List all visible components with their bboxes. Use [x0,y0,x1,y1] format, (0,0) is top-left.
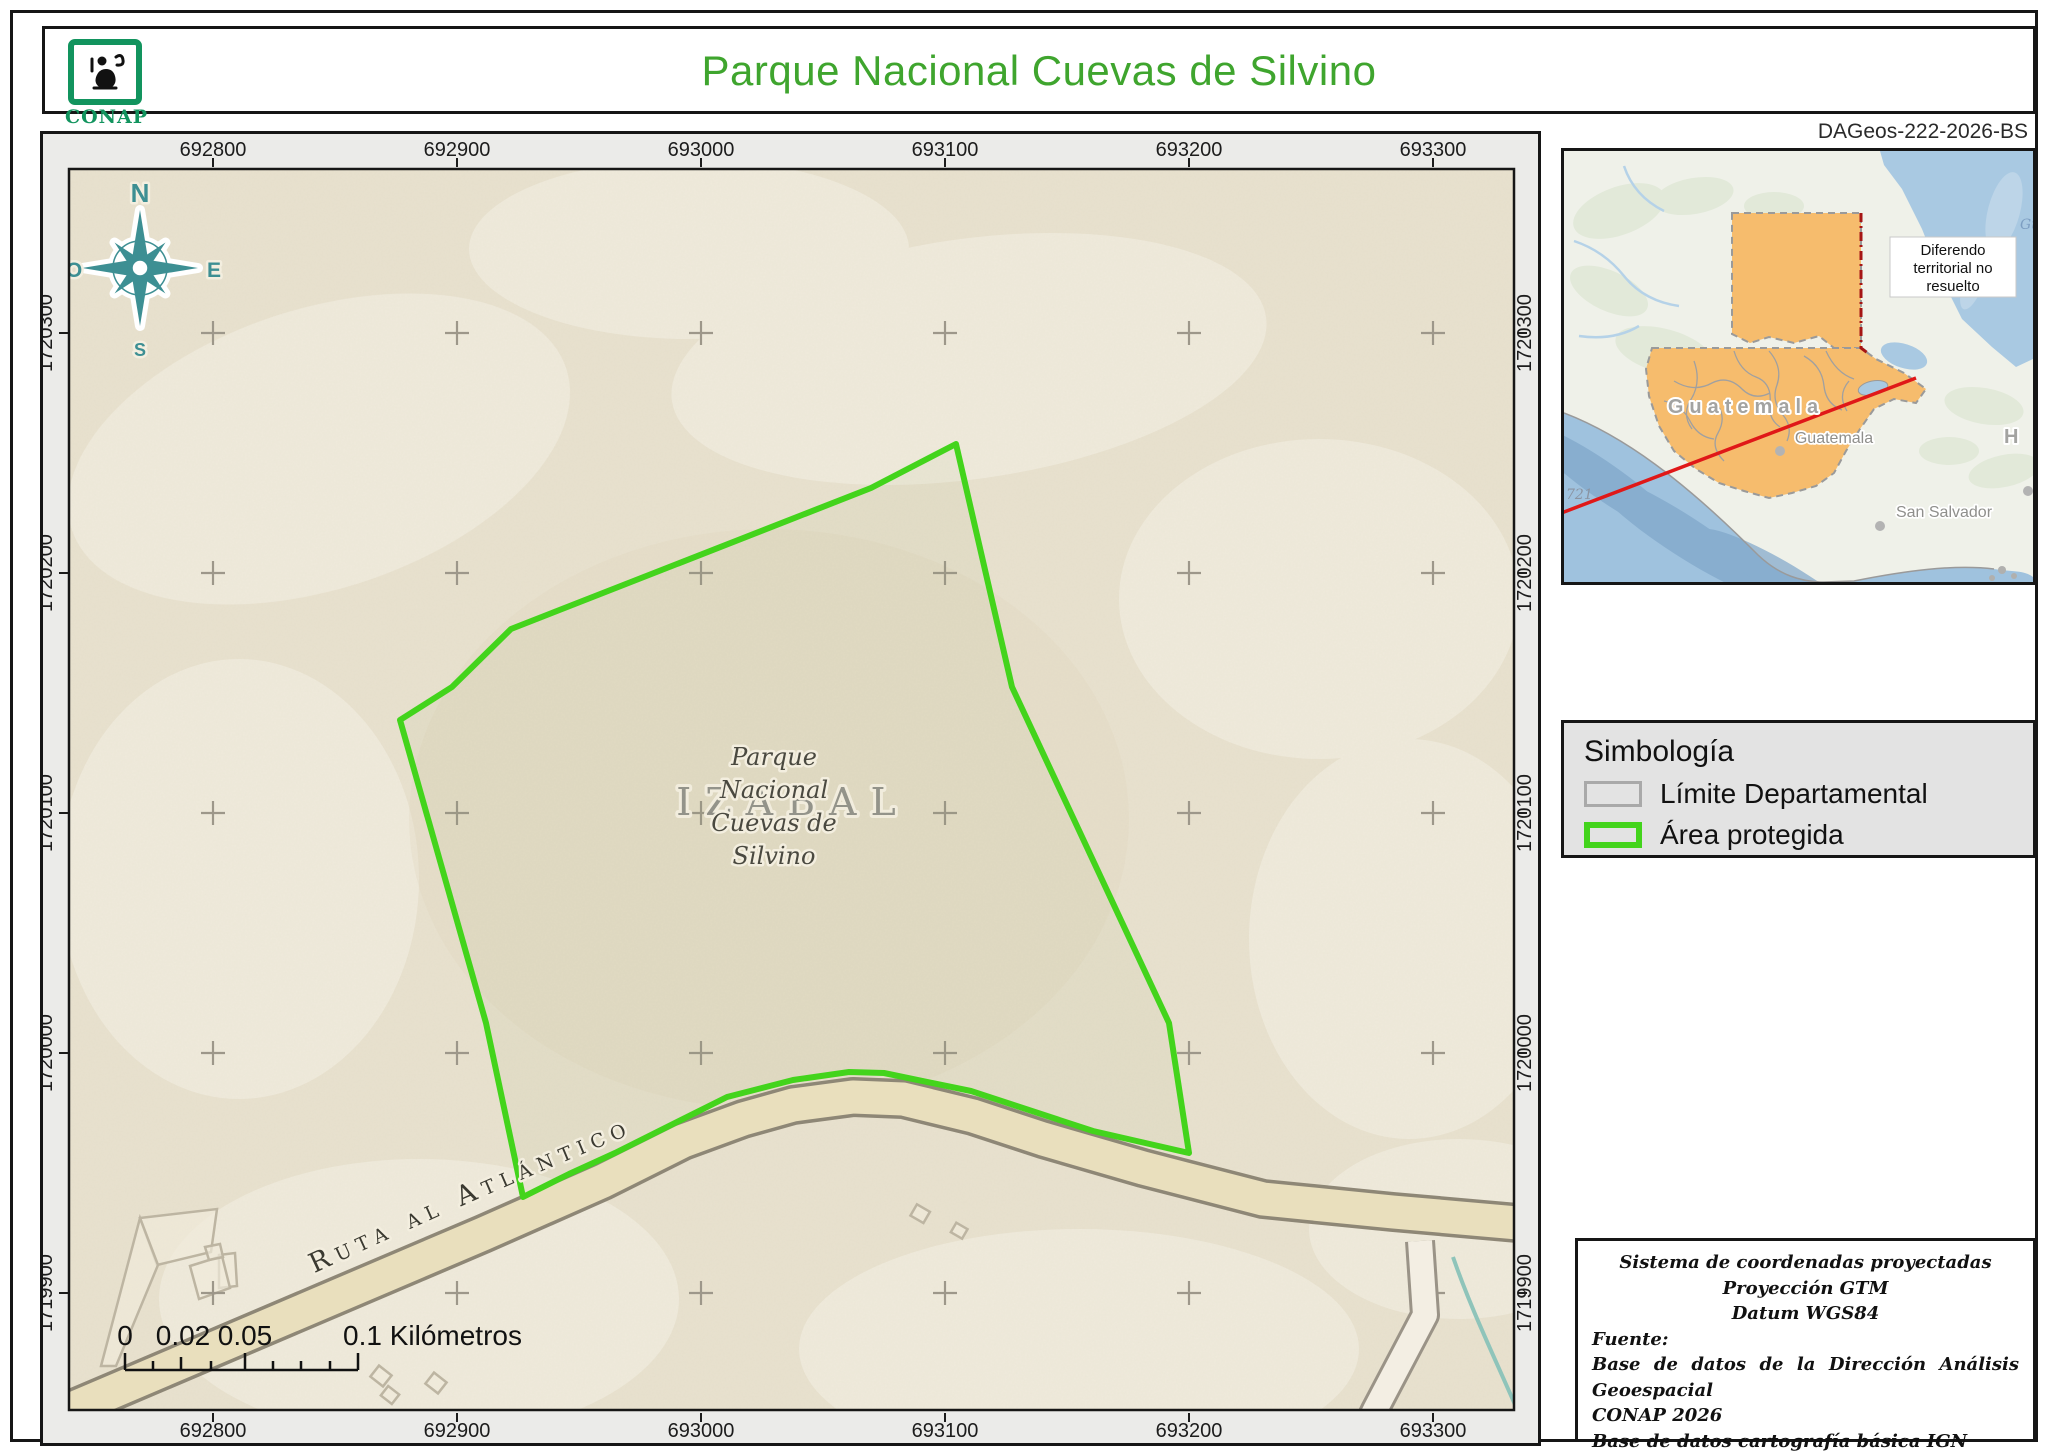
projection-line: Proyección GTM [1592,1276,2019,1302]
svg-text:Parque: Parque [730,743,817,771]
inset-ocean-label-1: Gu [2020,217,2033,233]
svg-text:1720100: 1720100 [1514,774,1536,852]
svg-text:0.05: 0.05 [218,1320,273,1351]
legend-title: Simbología [1584,735,2033,769]
disputed-territory-note: Diferendo territorial no resuelto [1890,237,2016,297]
legend-item-label: Límite Departamental [1660,778,1928,810]
svg-text:1720000: 1720000 [43,1014,57,1092]
svg-text:Diferendo: Diferendo [1920,242,1985,259]
legend: Simbología Límite Departamental Área pro… [1561,720,2036,858]
svg-text:692900: 692900 [424,1420,491,1442]
inset-city-label: Guatemala [1795,430,1873,447]
svg-text:693200: 693200 [1156,139,1223,161]
datum-line: Datum WGS84 [1592,1301,2019,1327]
source-label: Fuente: [1592,1327,2019,1353]
guatemala-city-dot [1775,446,1785,456]
svg-text:Cuevas de: Cuevas de [711,809,836,837]
departmental-limit-swatch [1584,781,1642,807]
main-map-svg: Ruta al Atlántico IZABAL Parque Nacional… [43,134,1538,1443]
source-line-2: CONAP 2026 [1592,1403,2019,1429]
page-title: Parque Nacional Cuevas de Silvino [45,47,2033,95]
inset-san-salvador-label: San Salvador [1896,504,1993,521]
svg-text:693200: 693200 [1156,1420,1223,1442]
svg-text:1719900: 1719900 [43,1254,57,1332]
svg-text:1720200: 1720200 [1514,534,1536,612]
san-salvador-dot [1875,521,1885,531]
legend-item-protected-area: Área protegida [1584,819,2033,851]
map-document-page: CONAP Parque Nacional Cuevas de Silvino … [0,0,2048,1452]
crs-line: Sistema de coordenadas proyectadas [1592,1250,2019,1276]
conap-logo-wordmark: CONAP [65,106,145,128]
svg-text:693100: 693100 [912,1420,979,1442]
svg-text:692900: 692900 [424,139,491,161]
legend-item-label: Área protegida [1660,819,1844,851]
inset-country-label: Guatemala [1668,396,1824,418]
svg-text:0.02: 0.02 [156,1320,211,1351]
svg-text:692800: 692800 [180,139,247,161]
svg-text:693000: 693000 [668,1420,735,1442]
svg-text:Silvino: Silvino [733,842,816,870]
svg-text:1719900: 1719900 [1514,1254,1536,1332]
svg-text:1720300: 1720300 [1514,294,1536,372]
header: CONAP Parque Nacional Cuevas de Silvino [42,26,2036,114]
svg-text:1720300: 1720300 [43,294,57,372]
inset-graticule-label: 721 [1566,487,1593,503]
main-map-frame: Ruta al Atlántico IZABAL Parque Nacional… [40,131,1541,1446]
source-line-1: Base de datos de la Dirección Análisis G… [1592,1352,2019,1403]
svg-text:0.1 Kilómetros: 0.1 Kilómetros [343,1320,522,1351]
svg-text:1720200: 1720200 [43,534,57,612]
inset-locator-map: Guatemala Guatemala San Salvador H o 721… [1561,148,2036,585]
svg-text:territorial no: territorial no [1913,260,1992,277]
svg-text:1720100: 1720100 [43,774,57,852]
inset-honduras-partial-label: H o [2004,426,2033,448]
map-canvas: Ruta al Atlántico IZABAL Parque Nacional… [43,159,1538,1443]
svg-text:resuelto: resuelto [1926,278,1979,295]
source-line-3: Base de datos cartografía básica IGN 201… [1592,1429,2019,1452]
edge-city-dot [2023,486,2033,496]
svg-text:693100: 693100 [912,139,979,161]
svg-text:693300: 693300 [1400,139,1467,161]
svg-text:0: 0 [117,1320,133,1351]
svg-text:E: E [207,259,221,282]
document-reference: DAGeos-222-2026-BS [1818,120,2028,144]
svg-text:Nacional: Nacional [719,776,828,804]
coordinate-system-info-box: Sistema de coordenadas proyectadas Proye… [1575,1238,2036,1442]
legend-item-departmental: Límite Departamental [1584,778,2033,810]
svg-text:692800: 692800 [180,1420,247,1442]
svg-text:N: N [131,178,150,208]
protected-area-swatch [1584,822,1642,848]
svg-text:693000: 693000 [668,139,735,161]
svg-text:1720000: 1720000 [1514,1014,1536,1092]
svg-text:693300: 693300 [1400,1420,1467,1442]
svg-text:S: S [134,340,146,360]
